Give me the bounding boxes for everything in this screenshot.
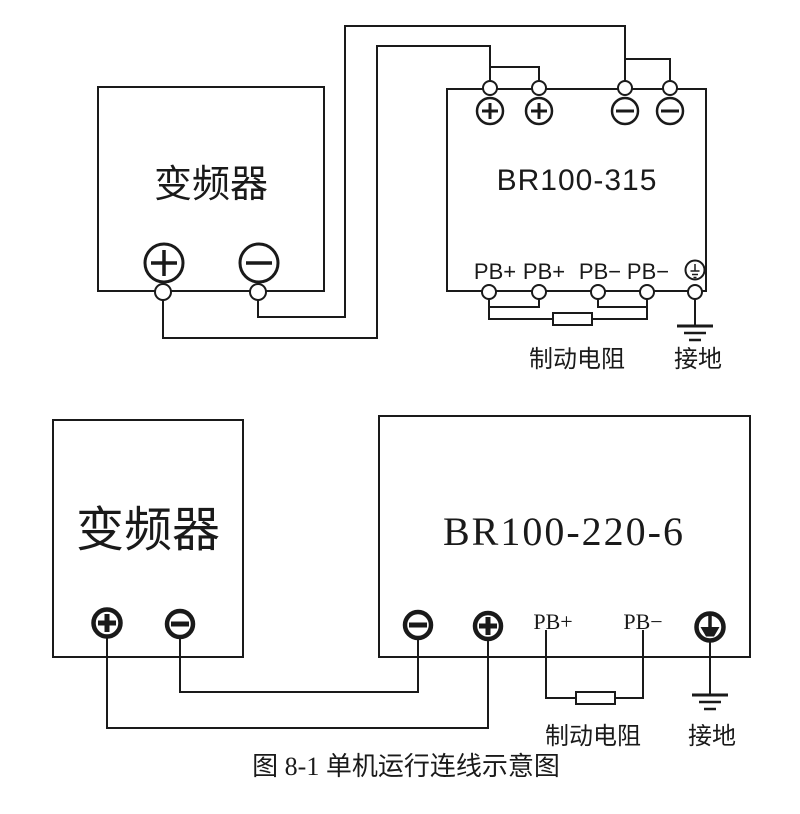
bottom-terminal-label-pb-plus: PB+: [533, 611, 572, 633]
brake315-plus2-terminal-icon: [526, 98, 552, 124]
top-pb-jumper-wires: [489, 292, 647, 307]
bottom-wire-minus-route: [180, 637, 418, 692]
brake315-plus-terminal-icon: [477, 98, 503, 124]
bottom-braking-resistor-label: 制动电阻: [545, 725, 641, 749]
top-brake-unit-model: BR100-315: [497, 166, 658, 196]
top-ground-label: 接地: [674, 348, 722, 372]
brake315-minus2-terminal-icon: [657, 98, 683, 124]
top-inverter-plus-terminal-icon: [145, 244, 183, 282]
brake315-earth-terminal-icon: [686, 261, 705, 280]
bottom-wire-plus-route: [107, 636, 488, 728]
brake220-minus-terminal-icon: [405, 612, 431, 638]
brake220-earth-terminal-icon: [697, 614, 724, 641]
top-inverter-minus-terminal-icon: [240, 244, 278, 282]
bottom-ground-label: 接地: [688, 725, 736, 749]
bottom-earth-ground-symbol: [692, 640, 728, 709]
top-braking-resistor-label: 制动电阻: [529, 348, 625, 372]
brake220-plus-terminal-icon: [475, 613, 501, 639]
bottom-terminal-label-pb-minus: PB−: [623, 611, 662, 633]
wiring-layer: [0, 0, 800, 814]
bottom-inverter-plus-terminal-icon: [94, 610, 121, 637]
top-terminal-label-pb-minus-1: PB−: [579, 261, 621, 283]
top-inverter-label: 变频器: [154, 166, 268, 204]
bottom-brake-unit-model: BR100-220-6: [443, 512, 685, 552]
top-terminal-label-pb-minus-2: PB−: [627, 261, 669, 283]
figure-caption: 图 8-1 单机运行连线示意图: [252, 754, 560, 780]
bottom-braking-resistor: [546, 630, 643, 704]
wiring-diagram-canvas: 变频器 BR100-315 PB+ PB+ PB− PB− 制动电阻 接地 变频…: [0, 0, 800, 814]
top-terminal-label-pb-plus-2: PB+: [523, 261, 565, 283]
brake315-minus-terminal-icon: [612, 98, 638, 124]
top-terminal-label-pb-plus-1: PB+: [474, 261, 516, 283]
bottom-inverter-minus-terminal-icon: [167, 611, 193, 637]
bottom-inverter-label: 变频器: [76, 507, 220, 555]
